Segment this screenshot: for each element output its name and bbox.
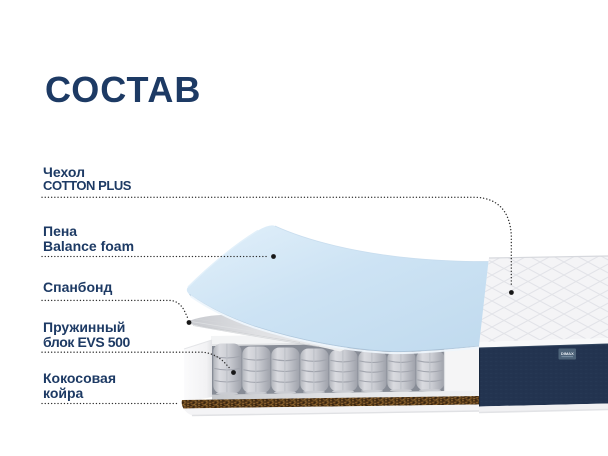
svg-text:DIMAX: DIMAX [561, 351, 574, 356]
